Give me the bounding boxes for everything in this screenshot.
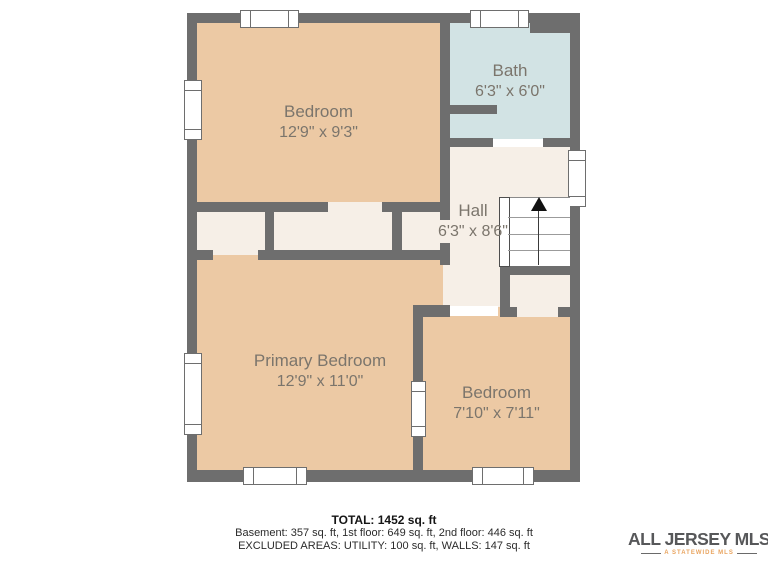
logo-tagline-text: A STATEWIDE MLS	[664, 550, 734, 556]
wall-bath-south-left	[440, 138, 493, 147]
logo-tagline: A STATEWIDE MLS	[628, 550, 768, 556]
stair-tread	[508, 250, 570, 251]
wall-understair-stub-left	[500, 307, 517, 317]
label-bath: Bath 6'3" x 6'0"	[450, 60, 570, 102]
wall-bedroom-bath-divider	[440, 23, 450, 220]
wall-outer-right	[570, 13, 580, 482]
room-name: Bedroom	[423, 382, 570, 403]
wall-strip-top-left	[197, 202, 328, 212]
label-bedroom-top: Bedroom 12'9" x 9'3"	[197, 101, 440, 143]
wall-bath-south-right	[543, 138, 570, 147]
logo-name-text: ALL JERSEY MLS	[628, 530, 768, 548]
room-dims: 12'9" x 11'0"	[197, 371, 443, 392]
room-dims: 6'3" x 8'6"	[428, 221, 518, 242]
room-name: Hall	[428, 200, 518, 221]
wall-bath-notch	[530, 23, 570, 33]
door-bath	[493, 139, 543, 147]
stair-direction-line	[538, 208, 539, 265]
wall-closet-divider-2	[392, 202, 402, 260]
room-dims: 12'9" x 9'3"	[197, 122, 440, 143]
window-top-bath	[470, 10, 529, 28]
door-bedroom-right	[450, 306, 498, 316]
wall-understair-stub-right	[558, 307, 570, 317]
all-jersey-mls-logo: ALL JERSEY MLS A STATEWIDE MLS	[624, 524, 766, 568]
window-bottom-bedroom-right	[472, 467, 534, 485]
window-bottom-primary	[243, 467, 307, 485]
window-right-hall	[568, 150, 586, 207]
label-primary-bedroom: Primary Bedroom 12'9" x 11'0"	[197, 350, 443, 392]
wall-bath-stub	[450, 105, 497, 114]
tagline-rule-right	[737, 553, 757, 554]
wall-strip-bottom-stub	[197, 250, 213, 260]
room-dims: 6'3" x 6'0"	[450, 81, 570, 102]
label-hall: Hall 6'3" x 8'6"	[428, 200, 518, 242]
room-dims: 7'10" x 7'11"	[423, 403, 570, 424]
room-name: Primary Bedroom	[197, 350, 443, 371]
window-top-bedroom	[240, 10, 299, 28]
stair-up-arrow-icon	[531, 197, 547, 211]
room-name: Bath	[450, 60, 570, 81]
tagline-rule-left	[641, 553, 661, 554]
wall-closet-divider-1	[265, 202, 274, 260]
floorplan-page: Bedroom 12'9" x 9'3" Bath 6'3" x 6'0" Ha…	[0, 0, 768, 576]
wall-strip-bottom-main	[258, 250, 450, 260]
wall-stairs-bottom	[500, 265, 570, 275]
label-bedroom-right: Bedroom 7'10" x 7'11"	[423, 382, 570, 424]
room-name: Bedroom	[197, 101, 440, 122]
